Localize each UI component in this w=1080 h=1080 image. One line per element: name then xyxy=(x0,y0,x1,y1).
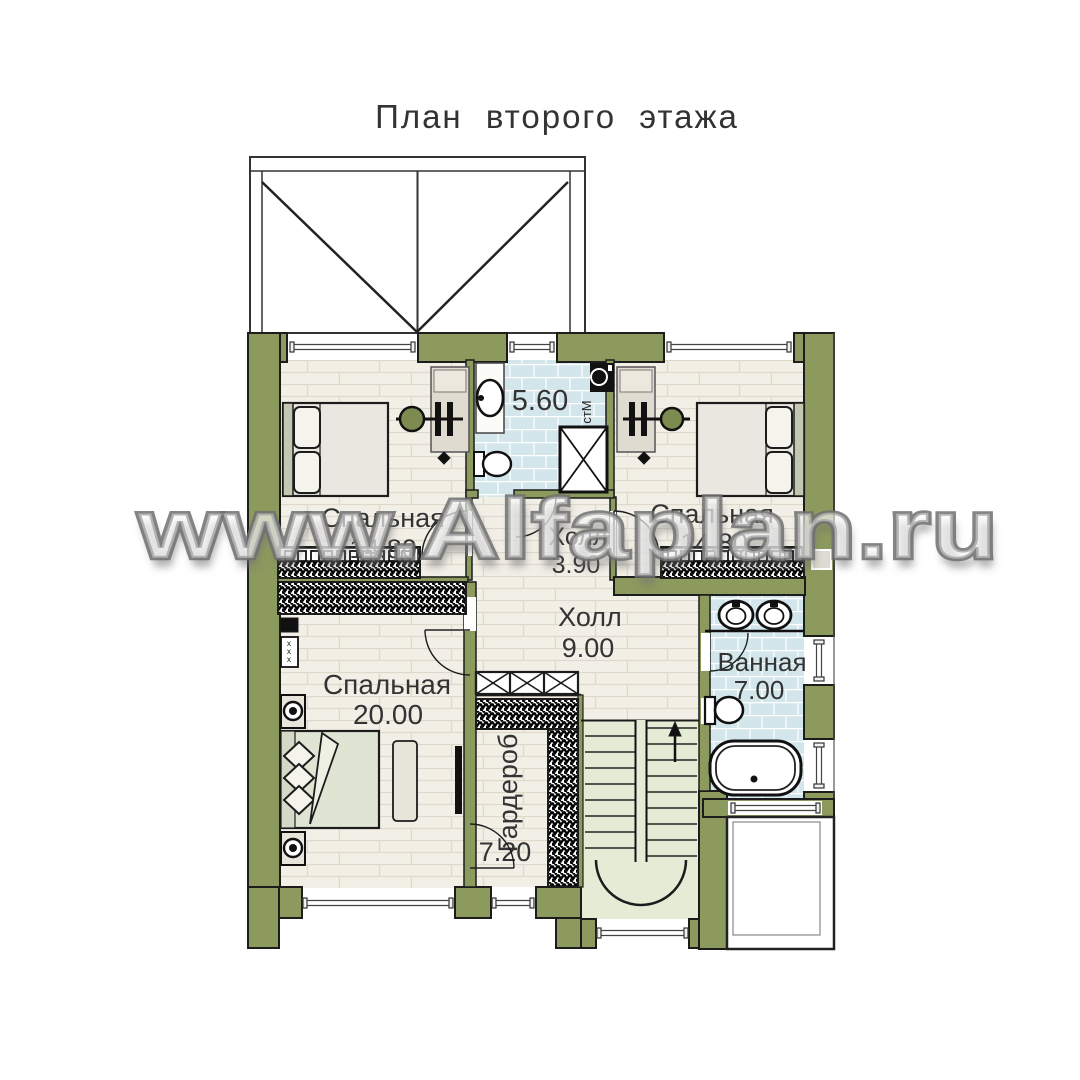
svg-text:стМ: стМ xyxy=(579,400,594,423)
svg-text:9.00: 9.00 xyxy=(562,633,615,663)
svg-text:Ванная: Ванная xyxy=(717,647,806,677)
svg-text:20.00: 20.00 xyxy=(353,699,423,730)
svg-text:План второго этажа: План второго этажа xyxy=(375,98,739,135)
svg-text:Гардероб: Гардероб xyxy=(493,734,523,853)
svg-text:7.00: 7.00 xyxy=(734,675,785,705)
svg-text:Спальная: Спальная xyxy=(323,669,451,700)
svg-text:5.60: 5.60 xyxy=(512,385,568,417)
svg-text:x: x xyxy=(287,656,292,665)
svg-text:Холл: Холл xyxy=(558,602,622,632)
